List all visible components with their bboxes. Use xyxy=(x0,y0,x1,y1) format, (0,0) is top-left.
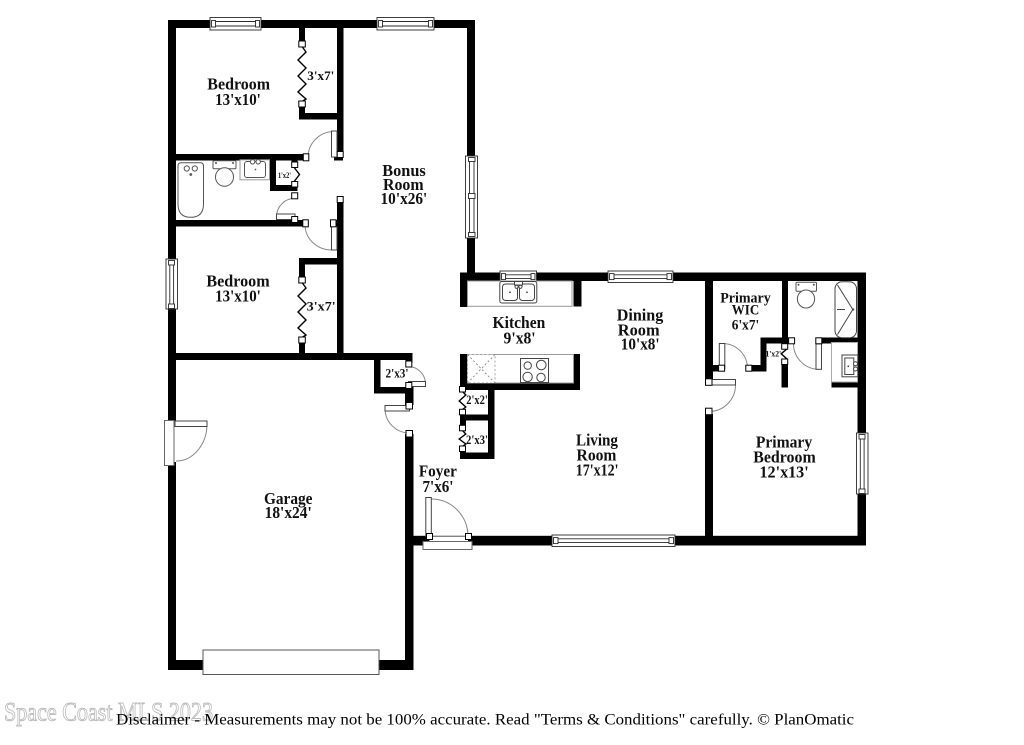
svg-text:13'x10': 13'x10' xyxy=(215,90,261,109)
svg-text:10'x8': 10'x8' xyxy=(621,335,660,354)
svg-text:Disclaimer - Measurements may: Disclaimer - Measurements may not be 100… xyxy=(116,712,854,729)
svg-text:2'x3': 2'x3' xyxy=(466,433,488,447)
svg-text:7'x6': 7'x6' xyxy=(423,477,454,496)
svg-text:13'x10': 13'x10' xyxy=(215,286,261,305)
svg-text:1'x2': 1'x2' xyxy=(278,171,291,180)
svg-text:12'x13': 12'x13' xyxy=(760,463,809,482)
svg-text:WIC: WIC xyxy=(732,303,759,319)
svg-text:9'x8': 9'x8' xyxy=(504,329,536,348)
svg-text:17'x12': 17'x12' xyxy=(576,460,619,479)
svg-text:2'x3': 2'x3' xyxy=(386,367,409,381)
svg-text:10'x26': 10'x26' xyxy=(381,189,428,208)
svg-text:2'x2': 2'x2' xyxy=(466,393,488,407)
svg-text:6'x7': 6'x7' xyxy=(732,318,759,334)
svg-text:3'x7': 3'x7' xyxy=(307,69,334,83)
svg-text:3'x7': 3'x7' xyxy=(307,300,336,314)
svg-text:1'x2': 1'x2' xyxy=(765,350,781,359)
svg-text:18'x24': 18'x24' xyxy=(265,503,312,522)
